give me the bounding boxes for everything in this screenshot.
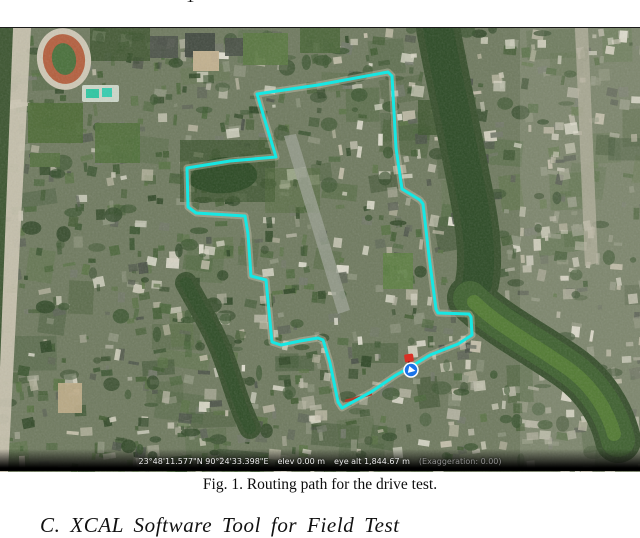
- figure-caption: Fig. 1. Routing path for the drive test.: [0, 476, 640, 494]
- section-heading: C. XCAL Software Tool for Field Test: [40, 513, 400, 538]
- map-canvas: [0, 28, 640, 472]
- status-elevation: elev 0.00 m: [278, 455, 326, 468]
- satellite-map[interactable]: 23°48'11.577"N 90°24'33.398"E elev 0.00 …: [0, 27, 640, 471]
- status-exaggeration: (Exaggeration: 0.00): [419, 455, 502, 468]
- navigation-marker[interactable]: [404, 363, 418, 377]
- map-status-bar: 23°48'11.577"N 90°24'33.398"E elev 0.00 …: [0, 455, 640, 468]
- status-coordinates: 23°48'11.577"N 90°24'33.398"E: [138, 455, 268, 468]
- status-eye-altitude: eye alt 1,844.67 m: [334, 455, 410, 468]
- grain-overlay: [0, 28, 640, 472]
- cropped-text-fragment-top: 1: [186, 0, 195, 7]
